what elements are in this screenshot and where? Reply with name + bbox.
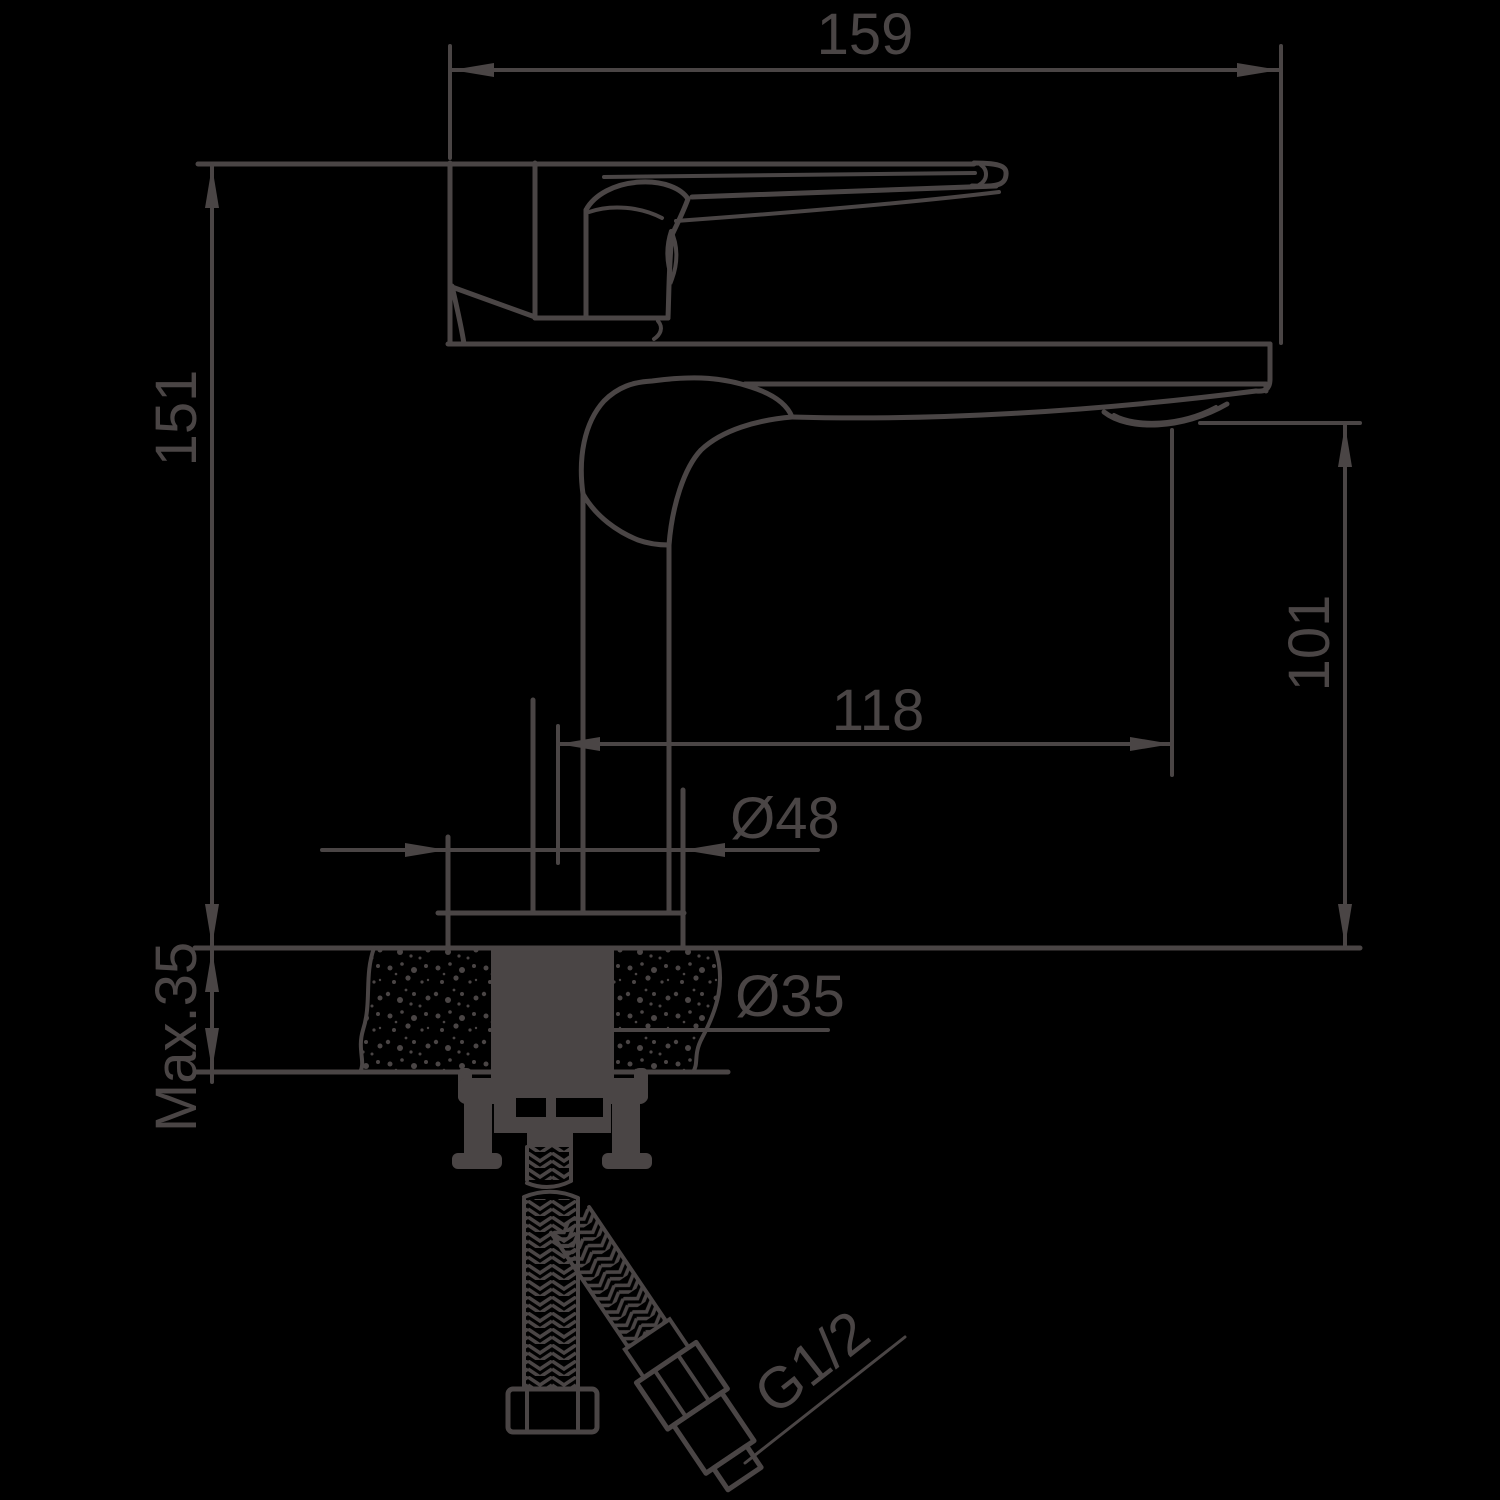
dimension-max-counter-thickness: Max.35 bbox=[144, 942, 219, 1132]
bracket-foot-left bbox=[452, 1153, 502, 1169]
arrowhead-118-right bbox=[1130, 737, 1172, 751]
supply-hose bbox=[508, 1147, 774, 1499]
dome-inner-top-line bbox=[589, 207, 662, 218]
dim-label-d35: Ø35 bbox=[735, 964, 845, 1029]
nut-window-left bbox=[516, 1098, 546, 1117]
counter-stipple-right bbox=[614, 948, 720, 1072]
lever-front-tip-diagonal bbox=[452, 287, 535, 317]
arrowhead-159-left bbox=[452, 63, 494, 77]
fitting-thread-section bbox=[674, 1393, 755, 1474]
lever-end-cap bbox=[972, 163, 1006, 186]
bracket-foot-right bbox=[602, 1153, 652, 1169]
lever-underside bbox=[692, 186, 996, 197]
lever-bottom-edge bbox=[604, 173, 975, 177]
lever-end-seam bbox=[979, 165, 986, 185]
arrowhead-d48-right bbox=[683, 843, 725, 857]
dim-label-101: 101 bbox=[1277, 595, 1342, 692]
fitting-tip bbox=[713, 1446, 761, 1490]
bracket-leg-left bbox=[464, 1100, 492, 1156]
arrowhead-101-top bbox=[1338, 425, 1352, 467]
dim-label-151: 151 bbox=[144, 370, 209, 467]
hose-end-nut-facets bbox=[527, 1392, 578, 1429]
dimension-connection-thread: G1/2 bbox=[742, 1298, 905, 1463]
dim-label-g12: G1/2 bbox=[742, 1298, 881, 1427]
arrowhead-118-left bbox=[558, 737, 600, 751]
arrowhead-151-bottom bbox=[205, 904, 219, 946]
dim-label-d48: Ø48 bbox=[730, 786, 840, 851]
spout-inner-top-line bbox=[745, 384, 1266, 391]
dome-tail-detail bbox=[654, 321, 661, 339]
aerator-inner-arc bbox=[1114, 407, 1216, 423]
hose-end-nut bbox=[508, 1389, 597, 1432]
counter-stipple-left bbox=[360, 948, 491, 1072]
threaded-shank bbox=[491, 948, 614, 1080]
dim-label-159: 159 bbox=[817, 2, 914, 67]
dim-label-max35: Max.35 bbox=[144, 942, 209, 1132]
bracket-leg-right bbox=[612, 1100, 640, 1156]
dim-label-118: 118 bbox=[832, 678, 924, 743]
dimension-spout-height: 101 bbox=[1200, 423, 1360, 948]
lever-front-tip-curve bbox=[452, 286, 464, 344]
cowl-inner-curve bbox=[669, 417, 792, 545]
dome-top-edge bbox=[586, 182, 688, 210]
nut-center-tab bbox=[527, 1133, 573, 1147]
arrowhead-d48-left bbox=[405, 843, 447, 857]
cowl-bottom-curve bbox=[583, 494, 669, 545]
hose-break-lower-lip bbox=[527, 1181, 571, 1187]
hose-braid-upper bbox=[527, 1147, 571, 1180]
spout-underside bbox=[792, 391, 1256, 418]
arrowhead-101-bottom bbox=[1338, 904, 1352, 946]
hose-break-upper-lip bbox=[524, 1192, 578, 1198]
nut-window-right bbox=[556, 1098, 603, 1117]
dimension-spout-reach: 118 bbox=[558, 430, 1172, 863]
faucet-technical-drawing: 159 151 Max.35 101 118 Ø48 Ø35 bbox=[0, 0, 1500, 1500]
arrowhead-159-right bbox=[1237, 63, 1279, 77]
arrowhead-151-top bbox=[205, 166, 219, 208]
fitting-hex-nut bbox=[636, 1342, 727, 1429]
